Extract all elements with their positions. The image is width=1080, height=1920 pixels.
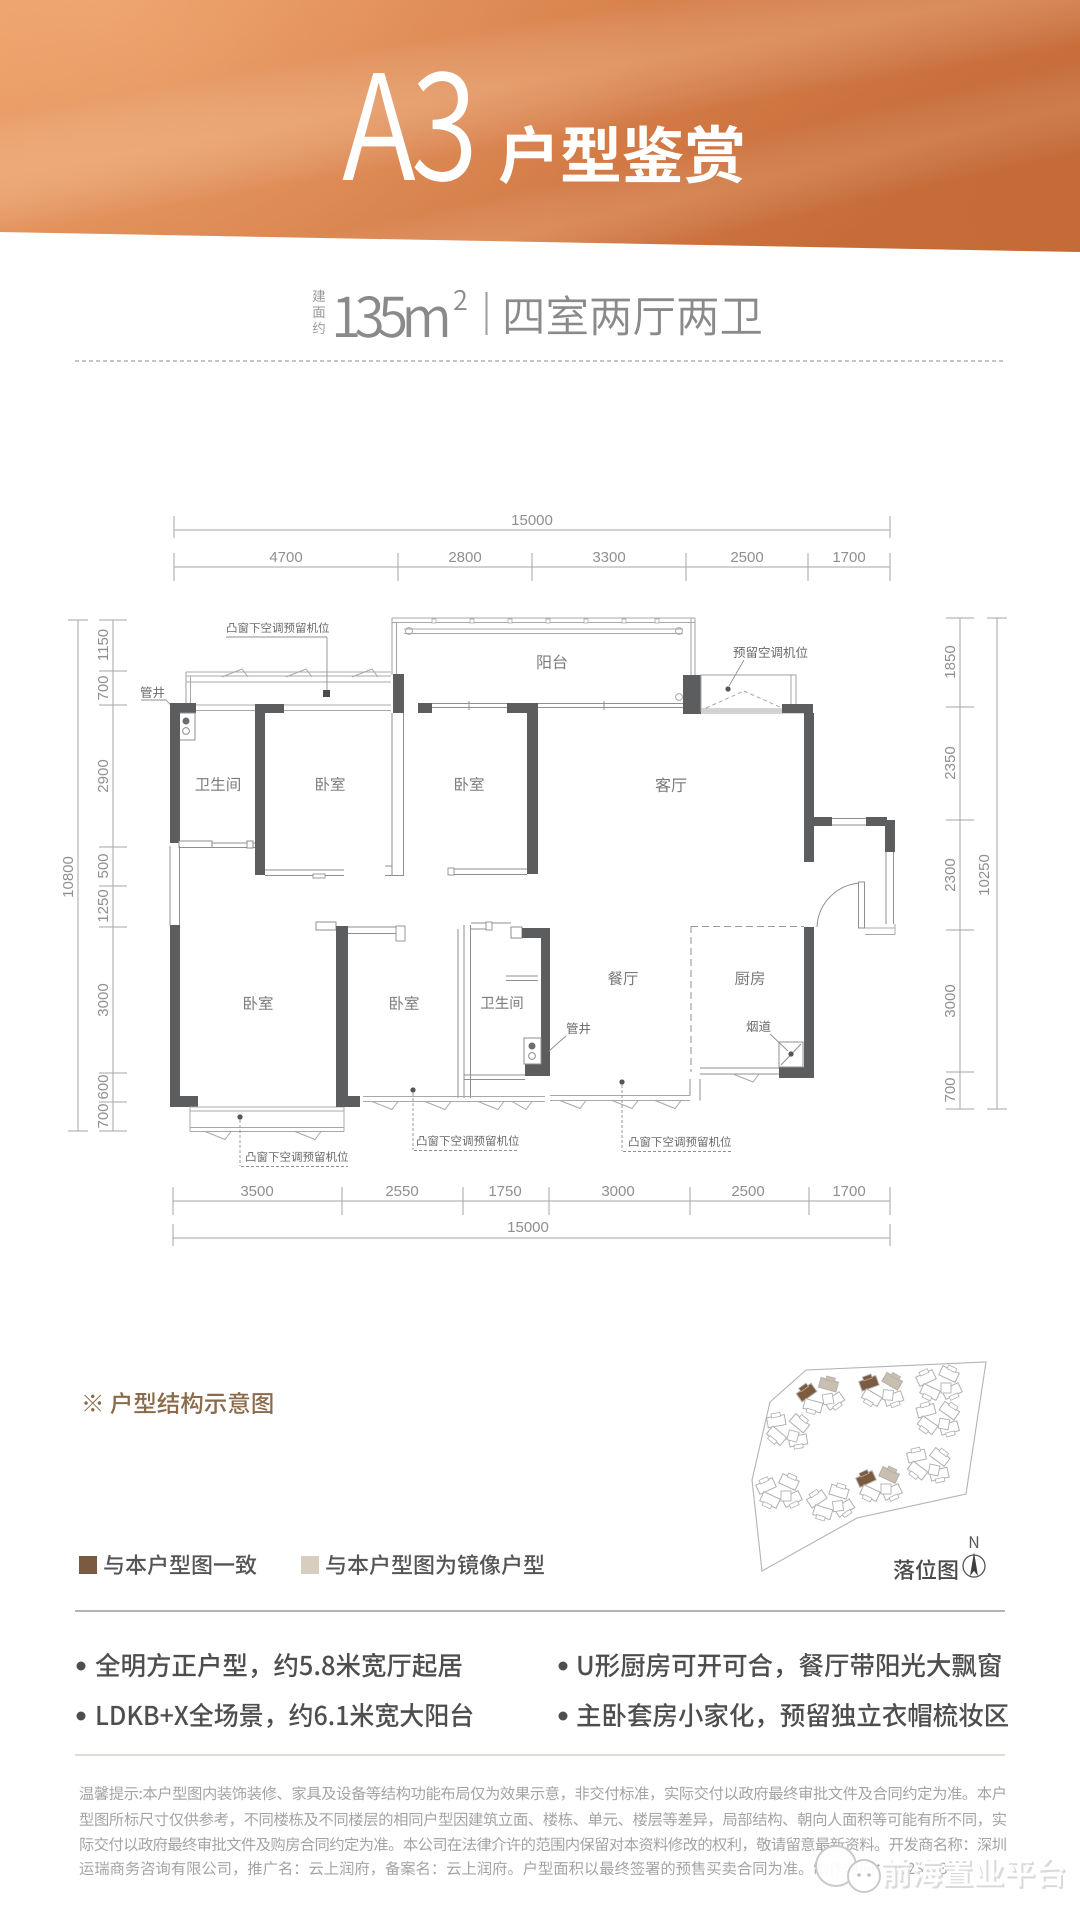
- svg-text:1750: 1750: [488, 1183, 521, 1200]
- svg-text:500: 500: [95, 853, 112, 878]
- svg-text:1850: 1850: [942, 645, 959, 678]
- svg-text:2550: 2550: [385, 1183, 418, 1200]
- svg-text:2800: 2800: [448, 549, 481, 566]
- svg-text:3500: 3500: [240, 1183, 273, 1200]
- svg-text:10250: 10250: [976, 854, 993, 896]
- svg-text:3300: 3300: [592, 549, 625, 566]
- svg-text:700: 700: [95, 1103, 112, 1128]
- svg-text:3000: 3000: [942, 984, 959, 1017]
- svg-text:1700: 1700: [832, 549, 865, 566]
- svg-text:600: 600: [95, 1074, 112, 1099]
- svg-text:2500: 2500: [731, 1183, 764, 1200]
- svg-text:2900: 2900: [95, 759, 112, 792]
- svg-text:15000: 15000: [507, 1219, 549, 1236]
- svg-text:1250: 1250: [95, 889, 112, 922]
- svg-text:4700: 4700: [269, 549, 302, 566]
- svg-text:700: 700: [95, 675, 112, 700]
- svg-text:10800: 10800: [60, 856, 77, 898]
- svg-text:3000: 3000: [601, 1183, 634, 1200]
- svg-text:2300: 2300: [942, 858, 959, 891]
- svg-text:1150: 1150: [95, 629, 112, 661]
- svg-text:2500: 2500: [730, 549, 763, 566]
- svg-text:15000: 15000: [511, 512, 553, 529]
- svg-text:1700: 1700: [832, 1183, 865, 1200]
- svg-text:2350: 2350: [942, 746, 959, 779]
- svg-text:3000: 3000: [95, 983, 112, 1016]
- svg-text:700: 700: [942, 1077, 959, 1102]
